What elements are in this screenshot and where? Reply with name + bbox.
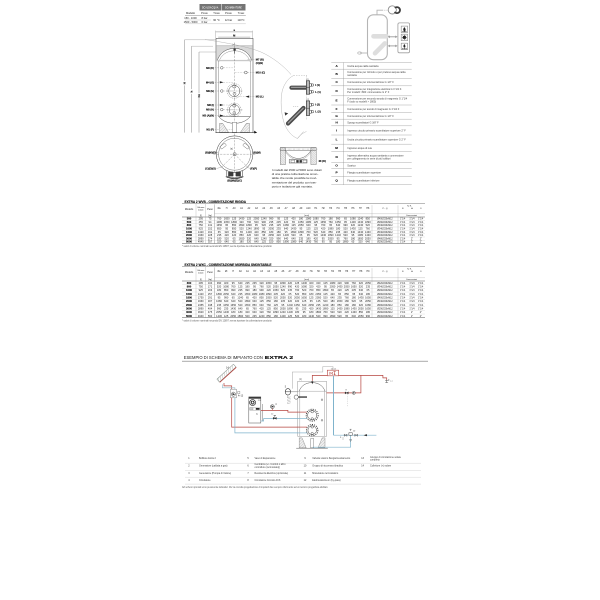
svg-text:P - Q: P - Q: [382, 271, 387, 273]
svg-text:Peso: Peso: [207, 208, 213, 211]
svg-text:A: A: [411, 270, 413, 273]
svg-text:L (1): L (1): [315, 90, 321, 94]
svg-text:1”1/4: 1”1/4: [400, 225, 406, 227]
svg-text:1”1/4: 1”1/4: [400, 218, 406, 220]
svg-text:235: 235: [252, 281, 257, 285]
svg-text:A9: A9: [300, 207, 304, 210]
svg-text:2050: 2050: [280, 295, 286, 299]
svg-text:520: 520: [267, 284, 272, 288]
svg-text:1890: 1890: [323, 288, 329, 292]
svg-text:1”1/4: 1”1/4: [418, 228, 424, 230]
svg-text:H2: H2: [317, 271, 321, 273]
svg-text:320: 320: [224, 281, 229, 285]
svg-text:A0: A0: [233, 207, 237, 210]
svg-text:295: 295: [199, 281, 204, 285]
svg-text:Resistenza Elettrica (opzional: Resistenza Elettrica (opzionale): [255, 472, 289, 475]
svg-text:291: 291: [208, 295, 213, 299]
svg-text:B: B: [402, 208, 404, 210]
svg-text:2050: 2050: [358, 314, 364, 318]
svg-text:1430: 1430: [305, 240, 311, 244]
svg-text:(F)(P): (F)(P): [250, 166, 257, 170]
svg-text:completo: completo: [370, 459, 380, 462]
svg-text:1”1/4: 1”1/4: [418, 308, 424, 310]
svg-text:65: 65: [345, 314, 348, 318]
svg-text:13: 13: [361, 457, 364, 460]
svg-text:2”: 2”: [411, 316, 413, 318]
svg-text:1”1/4: 1”1/4: [400, 294, 406, 296]
svg-text:235: 235: [366, 284, 371, 288]
svg-text:520: 520: [295, 292, 300, 296]
svg-text:EXTRA 2 WXC - COIBENTAZIONE MO: EXTRA 2 WXC - COIBENTAZIONE MORBIDA SMON…: [185, 263, 272, 267]
svg-text:Pmax: Pmax: [201, 11, 208, 15]
svg-text:A7: A7: [285, 207, 289, 210]
svg-text:2050: 2050: [266, 295, 272, 299]
svg-text:1”1/4: 1”1/4: [400, 283, 406, 285]
svg-text:1430: 1430: [351, 306, 357, 310]
svg-text:1430: 1430: [216, 314, 222, 318]
svg-text:2050: 2050: [315, 292, 321, 296]
svg-text:1650: 1650: [245, 292, 251, 296]
svg-text:1”1/4: 1”1/4: [409, 283, 415, 285]
svg-text:65: 65: [367, 288, 370, 292]
svg-text:1080: 1080: [344, 306, 350, 310]
svg-text:125: 125: [309, 295, 314, 299]
svg-text:65: 65: [352, 292, 355, 296]
svg-text:Circolatore ricircolo ACS: Circolatore ricircolo ACS: [255, 479, 281, 482]
svg-text:1890: 1890: [287, 306, 293, 310]
svg-text:235: 235: [281, 299, 286, 303]
svg-text:1”1/4: 1”1/4: [418, 232, 424, 234]
svg-text:Uscita acqua calda sanitaria: Uscita acqua calda sanitaria: [347, 65, 379, 68]
svg-text:1”1/4: 1”1/4: [418, 283, 424, 285]
svg-text:560: 560: [208, 314, 213, 318]
svg-text:(a): (a): [230, 149, 233, 151]
svg-text:1”1/4: 1”1/4: [409, 225, 415, 227]
svg-text:1”1/4: 1”1/4: [418, 222, 424, 224]
svg-text:2050: 2050: [266, 281, 272, 285]
svg-text:640: 640: [302, 303, 307, 307]
svg-text:180: 180: [231, 310, 236, 314]
svg-text:2500: 2500: [186, 303, 192, 307]
svg-text:M6 (I): M6 (I): [207, 103, 214, 107]
svg-text:760: 760: [323, 310, 328, 314]
svg-text:1”1/4: 1”1/4: [418, 286, 424, 288]
svg-text:1430: 1430: [358, 295, 364, 299]
svg-text:Q: Q: [335, 179, 338, 183]
svg-text:104: 104: [208, 281, 213, 285]
svg-text:640: 640: [224, 240, 229, 244]
svg-text:1650: 1650: [230, 303, 236, 307]
svg-text:1”1/4: 1”1/4: [400, 286, 406, 288]
svg-text:Ø480/220xM12: Ø480/220xM12: [377, 305, 393, 307]
svg-text:[2]: [2]: [307, 99, 310, 101]
svg-text:I: I: [336, 128, 337, 132]
svg-text:95: 95: [281, 303, 284, 307]
svg-text:420: 420: [330, 292, 335, 296]
svg-text:320: 320: [316, 281, 321, 285]
svg-text:180: 180: [217, 288, 222, 292]
svg-text:1650: 1650: [273, 288, 279, 292]
svg-text:O: O: [420, 208, 422, 210]
svg-text:3: 3: [188, 472, 190, 475]
svg-text:125: 125: [262, 240, 267, 244]
svg-text:65: 65: [338, 292, 341, 296]
svg-text:640: 640: [299, 240, 304, 244]
svg-text:850: 850: [252, 303, 257, 307]
svg-text:850: 850: [267, 299, 272, 303]
svg-text:95: 95: [303, 310, 306, 314]
svg-text:Modello: Modello: [185, 271, 194, 274]
svg-text:65: 65: [310, 299, 313, 303]
svg-text:Circolatore: Circolatore: [199, 479, 211, 482]
svg-text:1240: 1240: [280, 284, 286, 288]
svg-text:125: 125: [330, 306, 335, 310]
svg-text:180: 180: [302, 314, 307, 318]
svg-text:1080: 1080: [301, 284, 307, 288]
svg-text:125: 125: [323, 292, 328, 296]
svg-text:1430: 1430: [301, 281, 307, 285]
svg-text:H4: H4: [337, 208, 341, 210]
svg-text:I (2): I (2): [315, 103, 320, 107]
svg-text:1960: 1960: [198, 299, 204, 303]
svg-text:A: A: [335, 64, 338, 68]
svg-text:420: 420: [345, 310, 350, 314]
svg-text:2”: 2”: [411, 238, 413, 240]
svg-text:1”1/4: 1”1/4: [418, 218, 424, 220]
svg-text:180: 180: [345, 299, 350, 303]
svg-text:P - Q: P - Q: [382, 208, 387, 210]
svg-text:1”1/4: 1”1/4: [400, 238, 406, 240]
svg-text:H3: H3: [329, 208, 333, 210]
svg-text:1”1/4: 1”1/4: [418, 225, 424, 227]
svg-text:h1: h1: [197, 94, 201, 98]
svg-text:760: 760: [252, 306, 257, 310]
svg-text:A4: A4: [267, 270, 271, 273]
svg-text:1”1/4: 1”1/4: [400, 242, 406, 244]
svg-text:65: 65: [331, 288, 334, 292]
svg-text:2”: 2”: [420, 316, 422, 318]
svg-text:(B)(M)(E)(C): (B)(M)(E)(C): [227, 178, 242, 182]
svg-text:180: 180: [245, 284, 250, 288]
svg-text:(B)(M)(D): (B)(M)(D): [205, 150, 216, 154]
svg-text:125: 125: [288, 314, 293, 318]
svg-text:1240: 1240: [237, 295, 243, 299]
svg-text:760: 760: [352, 281, 357, 285]
svg-text:180: 180: [330, 303, 335, 307]
svg-text:1”1/4: 1”1/4: [418, 301, 424, 303]
svg-text:controllore (termostato)): controllore (termostato)): [255, 466, 281, 469]
svg-text:2050: 2050: [330, 284, 336, 288]
svg-text:1080: 1080: [216, 299, 222, 303]
svg-text:M3 (L): M3 (L): [256, 95, 264, 99]
svg-text:1500: 1500: [186, 292, 192, 296]
svg-text:Flangia scambiatore inferiore: Flangia scambiatore inferiore: [347, 180, 380, 183]
svg-text:850: 850: [316, 288, 321, 292]
svg-text:L: L: [336, 138, 338, 142]
svg-text:A6: A6: [277, 207, 281, 210]
svg-text:520: 520: [352, 299, 357, 303]
svg-text:95: 95: [253, 284, 256, 288]
svg-text:1890: 1890: [273, 310, 279, 314]
svg-text:760: 760: [309, 288, 314, 292]
svg-text:H8: H8: [359, 271, 363, 273]
svg-text:Ø480/220xM12: Ø480/220xM12: [377, 294, 393, 296]
svg-text:M8 (D): M8 (D): [206, 66, 214, 70]
svg-text:H: H: [335, 121, 338, 125]
svg-text:ESEMPIO DI SCHEMA DI IMPIANTO: ESEMPIO DI SCHEMA DI IMPIANTO CON: [184, 355, 263, 360]
svg-text:640: 640: [366, 240, 371, 244]
svg-text:1”1/4: 1”1/4: [409, 286, 415, 288]
svg-text:1”1/4: 1”1/4: [418, 290, 424, 292]
svg-text:1890: 1890: [323, 306, 329, 310]
svg-text:Øe: Øe: [218, 208, 222, 210]
svg-text:M2 (A)(N): M2 (A)(N): [202, 114, 214, 118]
svg-text:640: 640: [231, 299, 236, 303]
svg-text:2050: 2050: [344, 284, 350, 288]
svg-text:4: 4: [188, 479, 190, 482]
svg-text:1650: 1650: [245, 303, 251, 307]
svg-text:Ø340/220xM12: Ø340/220xM12: [377, 225, 393, 227]
svg-text:760: 760: [345, 295, 350, 299]
svg-text:3000: 3000: [186, 306, 192, 310]
svg-text:520: 520: [302, 288, 307, 292]
svg-text:95: 95: [274, 281, 277, 285]
svg-text:Vaso di Espansione: Vaso di Espansione: [255, 457, 277, 460]
svg-text:6: 6: [247, 464, 249, 467]
svg-text:1890: 1890: [283, 240, 289, 244]
svg-text:Ingresso circuito primario sca: Ingresso circuito primario scambiatore s…: [347, 129, 406, 132]
svg-text:A8: A8: [292, 207, 296, 210]
svg-text:Modello: Modello: [185, 208, 194, 211]
svg-text:1430: 1430: [230, 306, 236, 310]
svg-text:640: 640: [254, 240, 259, 244]
svg-text:235: 235: [337, 295, 342, 299]
svg-text:990: 990: [231, 288, 236, 292]
svg-text:1”1/4: 1”1/4: [400, 312, 406, 314]
svg-text:2”: 2”: [411, 242, 413, 244]
svg-text:M5 (H): M5 (H): [206, 108, 214, 112]
svg-text:760: 760: [314, 240, 319, 244]
svg-text:H1: H1: [314, 208, 318, 210]
svg-text:F: F: [336, 107, 338, 111]
svg-text:H: H: [226, 208, 228, 210]
svg-text:Tmax: Tmax: [213, 11, 220, 15]
svg-text:M: M: [335, 146, 338, 150]
svg-text:640: 640: [330, 295, 335, 299]
svg-text:H3: H3: [324, 271, 328, 273]
svg-text:520: 520: [337, 314, 342, 318]
svg-text:1”1/4: 1”1/4: [409, 235, 415, 237]
svg-text:E: E: [336, 98, 338, 102]
svg-text:640: 640: [259, 303, 264, 307]
svg-text:520: 520: [330, 310, 335, 314]
svg-text:180: 180: [252, 288, 257, 292]
svg-text:1240: 1240: [323, 303, 329, 307]
svg-text:235: 235: [288, 288, 293, 292]
svg-text:H: H: [232, 271, 234, 273]
svg-text:7: 7: [247, 472, 249, 475]
svg-text:per collegamento in serie di p: per collegamento in serie di più bollito…: [347, 157, 391, 160]
svg-text:Øi: Øi: [225, 271, 228, 273]
svg-text:320: 320: [259, 281, 264, 285]
svg-text:Spurgo scambiatori G 3/8” F: Spurgo scambiatori G 3/8” F: [347, 122, 379, 125]
svg-text:EXTRA 2: EXTRA 2: [265, 355, 294, 360]
svg-text:125: 125: [267, 306, 272, 310]
svg-text:11: 11: [304, 472, 307, 475]
svg-text:1890: 1890: [245, 299, 251, 303]
svg-text:1890: 1890: [330, 314, 336, 318]
svg-text:totale: totale: [198, 271, 204, 274]
svg-text:Peso: Peso: [207, 271, 213, 274]
svg-text:1890: 1890: [280, 281, 286, 285]
svg-text:180: 180: [309, 310, 314, 314]
svg-text:A3: A3: [260, 270, 264, 273]
svg-text:990: 990: [366, 314, 371, 318]
svg-text:1430: 1430: [337, 306, 343, 310]
svg-text:520: 520: [245, 314, 250, 318]
svg-text:(+): (+): [390, 380, 393, 382]
svg-text:1080: 1080: [330, 281, 336, 285]
svg-text:640: 640: [352, 314, 357, 318]
svg-text:1”1/4: 1”1/4: [409, 305, 415, 307]
svg-text:180: 180: [366, 292, 371, 296]
svg-text:11 12: 11 12: [331, 368, 337, 370]
svg-text:9: 9: [304, 457, 306, 460]
svg-text:D: D: [335, 89, 338, 93]
svg-text:1”1/4: 1”1/4: [409, 290, 415, 292]
svg-text:90 °C: 90 °C: [213, 18, 220, 22]
svg-text:A0: A0: [239, 270, 243, 273]
svg-text:SCAMBIATORE: SCAMBIATORE: [225, 7, 242, 10]
svg-text:a: a: [233, 29, 235, 32]
svg-text:990: 990: [217, 281, 222, 285]
svg-text:8: 8: [346, 389, 348, 391]
svg-text:1”1/4: 1”1/4: [400, 232, 406, 234]
svg-text:Flangia scambiatore superiore: Flangia scambiatore superiore: [347, 171, 381, 174]
svg-text:1650: 1650: [365, 306, 371, 310]
svg-text:1800: 1800: [186, 295, 192, 299]
svg-text:Connessioni: Connessioni: [406, 279, 418, 281]
svg-text:420: 420: [295, 284, 300, 288]
svg-text:B: B: [335, 72, 338, 76]
svg-text:A1: A1: [240, 207, 244, 210]
svg-text:Ø290/220xM12: Ø290/220xM12: [377, 312, 393, 314]
svg-text:14: 14: [361, 464, 364, 467]
svg-text:150 - 1000: 150 - 1000: [184, 16, 197, 20]
svg-text:420: 420: [316, 284, 321, 288]
svg-text:2000: 2000: [186, 299, 192, 303]
svg-text:235: 235: [352, 288, 357, 292]
svg-text:235: 235: [252, 314, 257, 318]
svg-text:520: 520: [281, 288, 286, 292]
svg-text:1”1/4: 1”1/4: [400, 308, 406, 310]
svg-text:990: 990: [259, 288, 264, 292]
svg-text:2: 2: [188, 464, 190, 467]
svg-text:640: 640: [252, 310, 257, 314]
svg-text:A4: A4: [262, 207, 266, 210]
svg-text:8 bar: 8 bar: [202, 16, 208, 20]
svg-text:640: 640: [238, 281, 243, 285]
svg-text:990: 990: [323, 314, 328, 318]
svg-text:420: 420: [288, 281, 293, 285]
svg-text:320: 320: [358, 240, 363, 244]
svg-text:Connessioni: Connessioni: [406, 215, 418, 217]
svg-text:Gli schemi riportati sono pura: Gli schemi riportati sono puramente indi…: [182, 486, 329, 489]
svg-text:1”1/4: 1”1/4: [400, 305, 406, 307]
svg-text:Ø400/220xM12: Ø400/220xM12: [377, 218, 393, 220]
svg-text:1080: 1080: [252, 292, 258, 296]
svg-text:P: P: [336, 170, 338, 174]
svg-text:Øi (D): Øi (D): [319, 159, 326, 163]
svg-text:1650: 1650: [223, 303, 229, 307]
svg-text:10: 10: [304, 464, 307, 467]
svg-text:H6: H6: [345, 271, 349, 273]
svg-text:2050: 2050: [365, 281, 371, 285]
svg-text:235: 235: [302, 306, 307, 310]
svg-text:(1): (1): [299, 379, 302, 381]
svg-text:4+13: 4+13: [238, 395, 244, 397]
svg-text:420: 420: [337, 281, 342, 285]
svg-text:1”1/4: 1”1/4: [400, 316, 406, 318]
svg-text:990: 990: [245, 288, 250, 292]
svg-text:SCALDACQUA: SCALDACQUA: [202, 7, 219, 10]
svg-text:850: 850: [224, 288, 229, 292]
svg-text:65: 65: [246, 306, 249, 310]
svg-text:Connessione per strumentazione: Connessione per strumentazione G 1/2” F: [347, 115, 394, 118]
svg-text:* valori di volume nominali se: * valori di volume nominali secondo EN 1…: [182, 319, 272, 322]
svg-text:125: 125: [302, 299, 307, 303]
svg-text:H7: H7: [359, 208, 363, 210]
svg-text:307: 307: [208, 299, 213, 303]
svg-text:H7: H7: [352, 271, 356, 273]
svg-text:125: 125: [323, 281, 328, 285]
svg-text:Connessione per strumentazione: Connessione per strumentazione G 1/2” F: [347, 81, 394, 84]
svg-text:Pmax: Pmax: [225, 11, 232, 15]
svg-text:65: 65: [232, 295, 235, 299]
svg-text:1080: 1080: [365, 303, 371, 307]
svg-text:1890: 1890: [266, 292, 272, 296]
svg-text:h: h: [189, 90, 193, 92]
svg-text:[kg]: [kg]: [208, 279, 212, 281]
svg-text:357: 357: [208, 240, 213, 244]
svg-text:2050: 2050: [223, 292, 229, 296]
svg-text:1: 1: [188, 457, 190, 460]
svg-text:850: 850: [337, 303, 342, 307]
svg-text:1750: 1750: [198, 295, 204, 299]
svg-text:A: A: [411, 207, 413, 210]
svg-text:1430: 1430: [337, 284, 343, 288]
svg-text:320: 320: [309, 281, 314, 285]
svg-text:850: 850: [359, 310, 364, 314]
svg-text:95: 95: [324, 284, 327, 288]
svg-text:125: 125: [345, 288, 350, 292]
svg-text:1”1/4: 1”1/4: [400, 290, 406, 292]
svg-text:1650: 1650: [294, 303, 300, 307]
svg-text:(B)(M): (B)(M): [253, 150, 261, 154]
svg-text:F (solo su modelli > 1800): F (solo su modelli > 1800): [347, 101, 376, 104]
svg-text:1”1/4: 1”1/4: [400, 228, 406, 230]
svg-text:12 bar: 12 bar: [225, 18, 232, 22]
svg-text:1”1/4: 1”1/4: [409, 294, 415, 296]
svg-text:320: 320: [295, 299, 300, 303]
svg-text:320: 320: [245, 310, 250, 314]
svg-text:520: 520: [217, 284, 222, 288]
svg-text:totale: totale: [198, 208, 204, 211]
svg-text:1”1/4: 1”1/4: [409, 218, 415, 220]
svg-text:1430: 1430: [315, 306, 321, 310]
svg-text:640: 640: [359, 292, 364, 296]
svg-text:4000: 4000: [186, 310, 192, 314]
